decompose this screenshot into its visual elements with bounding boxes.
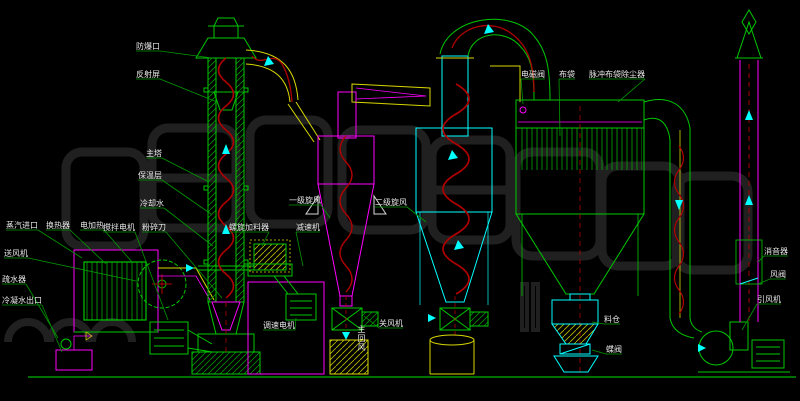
rotary-valve-1 — [332, 308, 378, 330]
rotary-valve-2 — [440, 308, 488, 330]
duct-cyclone1-to-cyclone2 — [352, 84, 430, 106]
collection-sack — [330, 340, 368, 374]
agitator-motor-shape — [150, 322, 212, 354]
material-bin-shape — [552, 294, 598, 372]
diagram-linework — [0, 0, 800, 401]
induced-fan — [698, 322, 790, 372]
flash-dryer-tower — [150, 18, 260, 374]
cad-canvas: 防爆口反射屏主塔保温层冷却水搅拌电机粉碎刀蒸汽进口换热器电加热送风机疏水器冷凝水… — [0, 0, 800, 401]
solenoid-valve-shape — [520, 107, 526, 113]
reducer-motor-shape — [274, 276, 316, 320]
duct-cyclone2-to-bagfilter — [440, 19, 550, 102]
collection-drum — [430, 335, 474, 374]
exhaust-stack — [735, 10, 763, 324]
filter-bags — [520, 128, 642, 170]
fan-motor-shape — [752, 340, 784, 368]
heater-blower-unit — [56, 250, 214, 370]
